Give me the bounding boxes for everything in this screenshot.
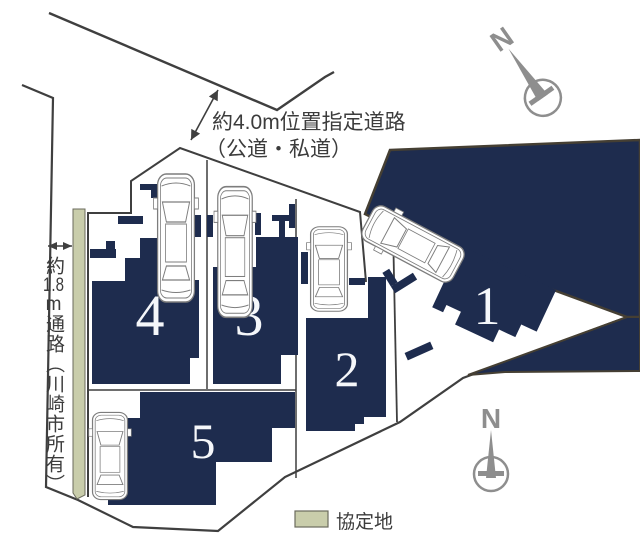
boundary-marker — [151, 184, 157, 198]
passage-label-width: 1.8 — [43, 276, 64, 295]
road-label-line2: （公道・私道） — [205, 136, 406, 163]
boundary-marker — [289, 204, 295, 228]
compass-bottom-n-label: N — [481, 403, 501, 434]
passage-label: 約1.8m通路（川崎市所有） — [44, 256, 63, 506]
compass-bottom: N — [474, 403, 508, 491]
passage-label-part4: 通路（川崎市所有） — [43, 314, 64, 494]
boundary-marker — [279, 221, 285, 243]
car-lot3-icon — [214, 187, 256, 318]
road-label: 約4.0m位置指定道路 （公道・私道） — [212, 109, 406, 164]
compass-top-n-label: N — [485, 21, 519, 58]
car-lot4-icon — [154, 174, 199, 302]
compass-needle-icon — [486, 430, 496, 478]
passage-label-unit: m — [43, 295, 64, 314]
lot5-number: 5 — [191, 413, 216, 469]
passage-label-part1: 約 — [43, 256, 64, 276]
legend-swatch — [295, 511, 328, 527]
road-edge-line — [49, 13, 334, 110]
boundary-marker — [118, 216, 143, 224]
agreement-land-strip — [73, 209, 85, 499]
boundary-marker — [106, 241, 115, 249]
lot2-number: 2 — [335, 341, 360, 397]
site-plan-svg: 4 3 2 5 1 N — [0, 0, 640, 548]
boundary-marker — [207, 215, 213, 237]
site-plan: 4 3 2 5 1 N — [0, 0, 640, 548]
boundary-marker — [301, 252, 308, 284]
boundary-marker — [195, 215, 201, 237]
road-label-line1: 約4.0m位置指定道路 — [212, 109, 406, 136]
compass-top: N — [478, 16, 568, 123]
boundary-marker — [349, 278, 365, 285]
car-lot5-icon — [89, 412, 132, 499]
lot1-number: 1 — [474, 276, 501, 336]
legend-label: 協定地 — [336, 507, 393, 534]
car-lot2-icon — [307, 227, 352, 311]
passage-width-arrow — [48, 242, 72, 250]
boundary-marker — [405, 342, 434, 361]
compass-circle-icon — [518, 73, 568, 123]
boundary-marker — [90, 249, 116, 258]
